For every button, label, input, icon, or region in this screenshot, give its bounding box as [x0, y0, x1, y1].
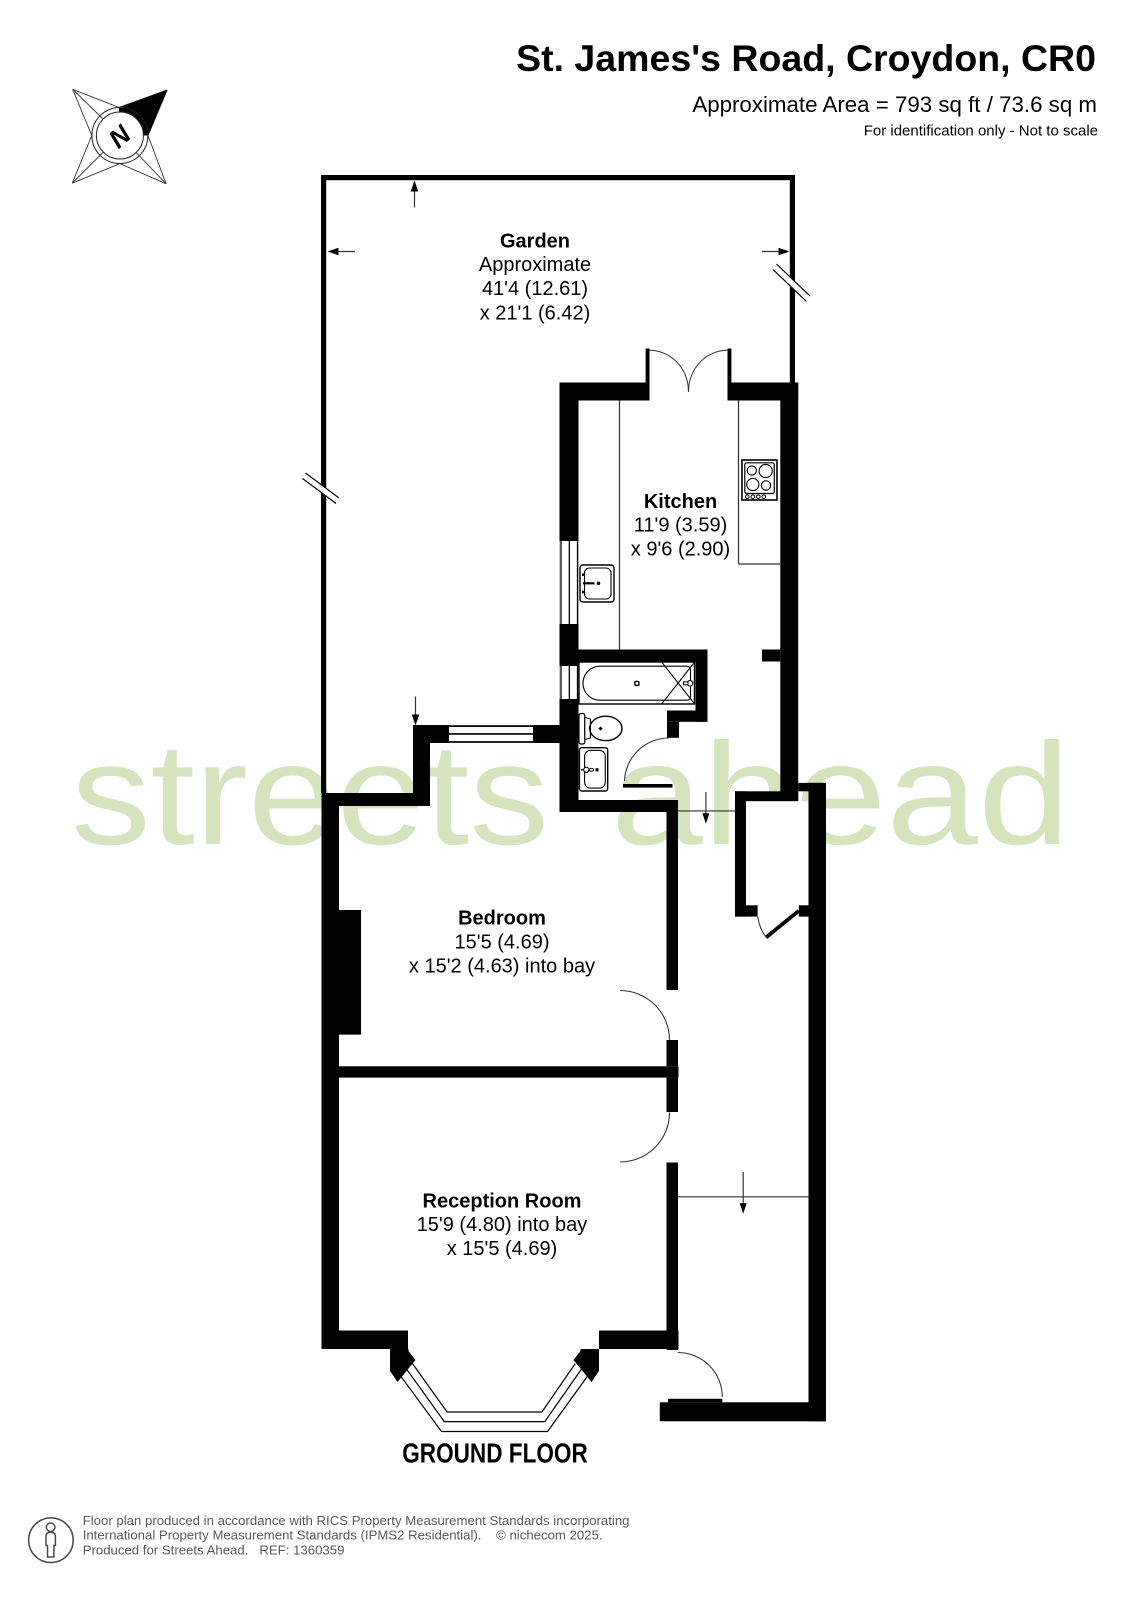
- svg-text:15'9 (4.80) into bay: 15'9 (4.80) into bay: [417, 1214, 588, 1236]
- svg-text:15'5 (4.69): 15'5 (4.69): [455, 932, 550, 954]
- svg-text:For identification only - Not: For identification only - Not to scale: [864, 123, 1098, 140]
- svg-text:x 15'2 (4.63) into bay: x 15'2 (4.63) into bay: [409, 955, 595, 977]
- svg-text:ahead: ahead: [611, 713, 1070, 875]
- svg-text:International Property Measure: International Property Measurement Stand…: [83, 1528, 603, 1543]
- svg-text:Bedroom: Bedroom: [458, 908, 546, 930]
- svg-text:Floor plan produced in accorda: Floor plan produced in accordance with R…: [83, 1513, 630, 1528]
- svg-text:Kitchen: Kitchen: [644, 491, 717, 513]
- svg-text:x 21'1 (6.42): x 21'1 (6.42): [480, 302, 591, 324]
- svg-text:11'9 (3.59): 11'9 (3.59): [634, 515, 728, 537]
- svg-text:x 9'6 (2.90): x 9'6 (2.90): [631, 539, 730, 561]
- svg-text:Reception Room: Reception Room: [423, 1191, 582, 1213]
- svg-text:x 15'5 (4.69): x 15'5 (4.69): [447, 1238, 558, 1260]
- svg-text:41'4 (12.61): 41'4 (12.61): [482, 278, 588, 300]
- svg-text:Approximate Area = 793 sq ft /: Approximate Area = 793 sq ft / 73.6 sq m: [692, 92, 1097, 117]
- svg-text:Garden: Garden: [500, 230, 570, 252]
- svg-text:GROUND FLOOR: GROUND FLOOR: [402, 1438, 588, 1469]
- svg-text:Approximate: Approximate: [479, 254, 591, 276]
- svg-text:Produced for Streets Ahead.: Produced for Streets Ahead. REF: 1360359: [83, 1543, 345, 1558]
- svg-text:St. James's Road, Croydon, CR0: St. James's Road, Croydon, CR0: [516, 37, 1096, 79]
